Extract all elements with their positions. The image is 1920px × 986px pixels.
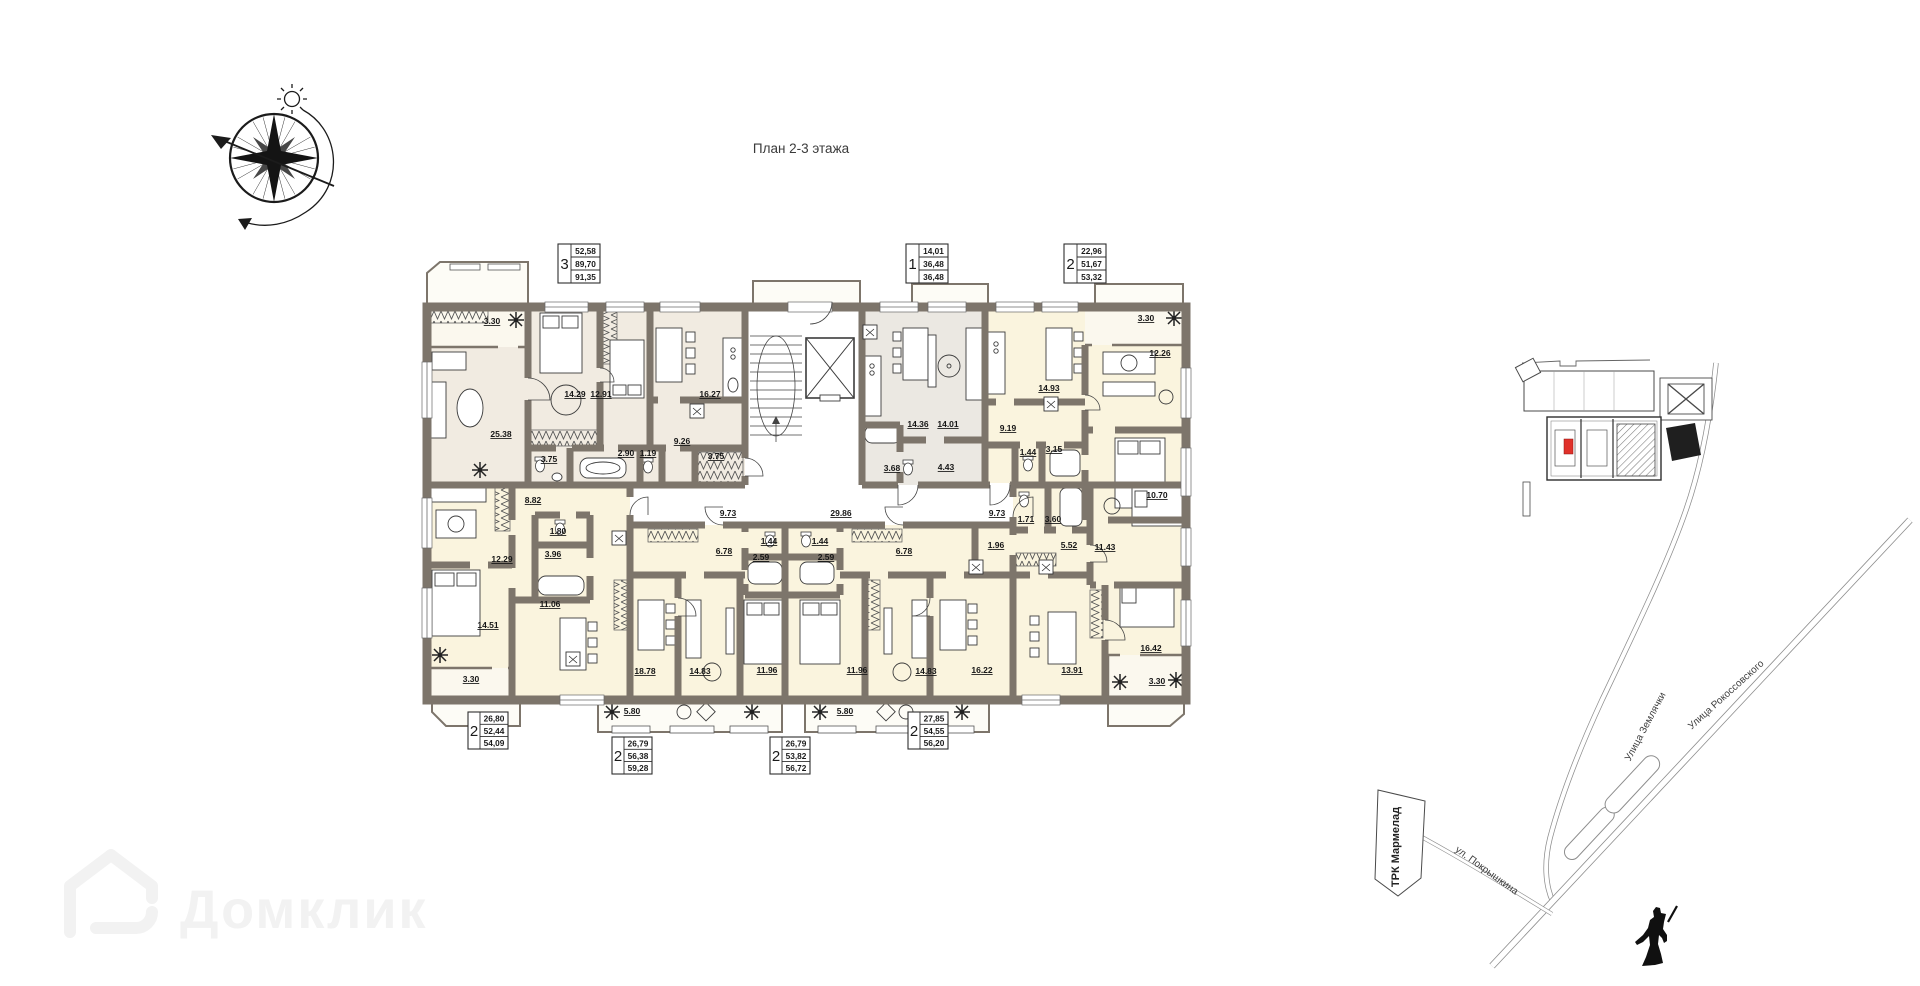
living-area: 14,01: [923, 246, 944, 256]
apartment-area: 53,82: [786, 751, 807, 761]
room-area-label: 14.51: [477, 620, 499, 630]
room-area-label: 11.96: [757, 665, 778, 675]
room-area-label: 13.91: [1061, 665, 1083, 675]
apartment-area: 56,38: [628, 751, 649, 761]
apartment-area: 36,48: [923, 259, 944, 269]
floorplan-page: План 2-3 этажа: [0, 0, 1920, 986]
room-area-label: 11.43: [1095, 542, 1116, 552]
room-area-label: 3.30: [463, 674, 480, 684]
entrance-porch: [753, 281, 860, 305]
room-area-label: 3.75: [541, 454, 558, 464]
room-area-label: 5.52: [1061, 540, 1078, 550]
room-area-label: 3.15: [1046, 444, 1063, 454]
brand-logo-icon: [70, 855, 152, 932]
living-area: 26,79: [786, 739, 807, 749]
room-area-label: 14.83: [689, 666, 711, 676]
total-area: 56,72: [786, 763, 807, 773]
room-area-label: 3.96: [545, 549, 562, 559]
rooms-count: 2: [470, 723, 478, 740]
apartment-summary-table: 3 52,58 89,70 91,35: [558, 244, 600, 283]
room-area-label: 12.91: [590, 389, 612, 399]
room-area-label: 11.96: [847, 665, 868, 675]
room-area-label: 3.68: [884, 463, 901, 473]
apartment-summary-table: 2 26,80 52,44 54,09: [468, 712, 508, 749]
street-label: Улица Землячки: [1623, 691, 1668, 763]
apartment-area: 51,67: [1081, 259, 1102, 269]
room-area-label: 1.71: [1018, 514, 1035, 524]
room-area-label: 14.83: [915, 666, 937, 676]
room-area-label: 1.44: [812, 536, 829, 546]
room-area-label: 3.75: [708, 451, 725, 461]
apartment-summary-table: 2 26,79 53,82 56,72: [770, 737, 810, 774]
room-area-label: 14.01: [937, 419, 959, 429]
room-area-label: 4.43: [938, 462, 955, 472]
room-area-label: 6.78: [896, 546, 913, 556]
corridor-area-label: 9.73: [720, 508, 737, 518]
map-residential-complex: [1547, 417, 1661, 480]
total-area: 91,35: [575, 272, 596, 282]
apartment-area: 89,70: [575, 259, 596, 269]
room-area-label: 1.96: [988, 540, 1005, 550]
landmark-label: ТРК Мармелад: [1390, 807, 1402, 887]
room-area-label: 3.60: [1045, 514, 1062, 524]
rooms-count: 2: [772, 748, 780, 765]
room-area-label: 5.80: [624, 706, 641, 716]
room-area-label: 14.29: [564, 389, 586, 399]
living-area: 27,85: [924, 714, 945, 724]
room-area-label: 1.80: [550, 526, 567, 536]
room-area-label: 14.93: [1038, 383, 1060, 393]
rooms-count: 1: [908, 256, 916, 273]
room-area-label: 11.06: [540, 599, 561, 609]
total-area: 53,32: [1081, 272, 1102, 282]
room-area-label: 5.80: [837, 706, 854, 716]
floorplan-scene: План 2-3 этажа: [0, 0, 1920, 986]
street-label: ул. Покрышкина: [1453, 844, 1521, 897]
apartment-summary-table: 2 27,85 54,55 56,20: [908, 712, 948, 749]
landmark-badge: ТРК Мармелад: [1375, 790, 1425, 896]
compass-rose: [211, 84, 334, 230]
room-area-label: 3.30: [1138, 313, 1155, 323]
corridor-area-label: 29.86: [830, 508, 852, 518]
rooms-count: 2: [614, 748, 622, 765]
statue-icon: [1635, 906, 1677, 966]
living-area: 52,58: [575, 246, 596, 256]
rooms-count: 3: [560, 256, 568, 273]
apartment-summary-table: 2 22,96 51,67 53,32: [1064, 244, 1106, 283]
room-area-label: 3.30: [484, 316, 501, 326]
room-area-label: 18.78: [634, 666, 656, 676]
apartment-summary-table: 1 14,01 36,48 36,48: [906, 244, 948, 283]
living-area: 26,80: [484, 714, 505, 724]
road-rokossovskogo: [1492, 520, 1910, 966]
apartment-area: 52,44: [484, 726, 505, 736]
room-area-label: 1.19: [640, 448, 657, 458]
highlighted-building: [1564, 439, 1573, 454]
room-area-label: 2.90: [618, 448, 635, 458]
corridor-area-label: 9.73: [989, 508, 1006, 518]
room-area-label: 1.44: [1020, 447, 1037, 457]
total-area: 56,20: [924, 738, 945, 748]
living-area: 26,79: [628, 739, 649, 749]
apartment-summary-table: 2 26,79 56,38 59,28: [612, 737, 652, 774]
room-area-label: 16.27: [699, 389, 721, 399]
corridor-area: [630, 485, 1013, 525]
page-title: План 2-3 этажа: [753, 141, 850, 156]
room-area-label: 9.19: [1000, 423, 1017, 433]
rooms-count: 2: [910, 723, 918, 740]
room-area-label: 8.82: [525, 495, 542, 505]
floor-plan: 9.73 29.86 9.73 3.30 14.29 12.91 16.27 2…: [422, 244, 1191, 774]
apartment-area: 54,55: [924, 726, 945, 736]
brand-name: Домклик: [180, 880, 428, 940]
room-area-label: 25.38: [490, 429, 512, 439]
room-area-label: 12.29: [491, 554, 513, 564]
room-area-label: 12.26: [1149, 348, 1171, 358]
room-area-label: 16.42: [1140, 643, 1162, 653]
room-area-label: 2.59: [818, 552, 835, 562]
room-area-label: 3.30: [1149, 676, 1166, 686]
room-area-label: 10.70: [1146, 490, 1168, 500]
room-area-label: 14.36: [907, 419, 929, 429]
map-building-dark: [1666, 423, 1701, 461]
brand-watermark: Домклик: [70, 855, 428, 940]
room-area-label: 6.78: [716, 546, 733, 556]
sun-icon: [277, 84, 307, 114]
room-area-label: 9.26: [674, 436, 691, 446]
total-area: 54,09: [484, 738, 505, 748]
room-area-label: 2.59: [753, 552, 770, 562]
rooms-count: 2: [1066, 256, 1074, 273]
room-area-label: 1.44: [761, 536, 778, 546]
total-area: 59,28: [628, 763, 649, 773]
total-area: 36,48: [923, 272, 944, 282]
site-map: Улица Землячки Улица Рокоссовского ул. П…: [1375, 358, 1910, 966]
living-area: 22,96: [1081, 246, 1102, 256]
room-area-label: 16.22: [971, 665, 993, 675]
